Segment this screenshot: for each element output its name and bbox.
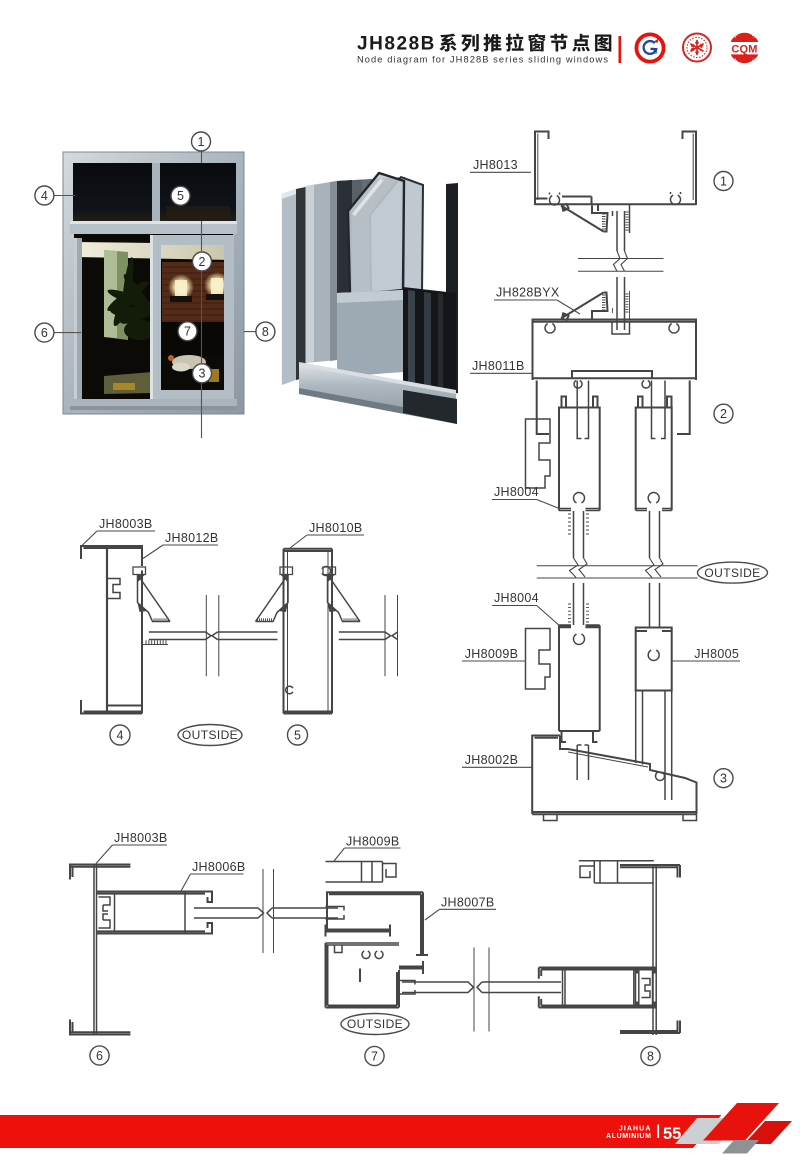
svg-text:JH8012B: JH8012B <box>165 531 219 545</box>
svg-text:1: 1 <box>198 135 205 149</box>
svg-text:3: 3 <box>199 367 206 381</box>
svg-text:ALUMINIUM: ALUMINIUM <box>606 1133 651 1140</box>
svg-text:6: 6 <box>96 1049 103 1063</box>
svg-text:JIAHUA: JIAHUA <box>619 1125 652 1132</box>
svg-text:JH8011B: JH8011B <box>472 359 525 373</box>
svg-text:4: 4 <box>41 189 48 203</box>
svg-text:6: 6 <box>41 326 48 340</box>
svg-text:JH8002B: JH8002B <box>465 753 519 767</box>
svg-text:5: 5 <box>177 189 184 203</box>
svg-text:2: 2 <box>199 255 206 269</box>
svg-text:5: 5 <box>294 728 301 742</box>
svg-text:JH8007B: JH8007B <box>441 896 495 910</box>
svg-text:JH8006B: JH8006B <box>192 860 246 874</box>
svg-text:7: 7 <box>184 325 191 339</box>
svg-text:OUTSIDE: OUTSIDE <box>704 566 760 580</box>
svg-text:JH828BYX: JH828BYX <box>496 286 560 300</box>
svg-text:JH8009B: JH8009B <box>346 835 400 849</box>
svg-text:JH8009B: JH8009B <box>465 647 519 661</box>
svg-text:CQM: CQM <box>731 43 757 55</box>
svg-text:OUTSIDE: OUTSIDE <box>182 728 238 742</box>
svg-text:JH8005: JH8005 <box>694 647 739 661</box>
svg-text:OUTSIDE: OUTSIDE <box>347 1017 403 1031</box>
svg-text:1: 1 <box>720 174 727 188</box>
svg-text:8: 8 <box>647 1049 654 1063</box>
svg-text:JH8003B: JH8003B <box>99 517 153 531</box>
svg-text:3: 3 <box>720 772 727 786</box>
svg-text:JH828B: JH828B <box>357 34 437 55</box>
svg-text:2: 2 <box>720 407 727 421</box>
svg-text:B: B <box>654 50 658 56</box>
svg-text:7: 7 <box>371 1049 378 1063</box>
svg-text:8: 8 <box>262 325 269 339</box>
svg-text:4: 4 <box>117 728 124 742</box>
svg-text:JH8003B: JH8003B <box>114 831 168 845</box>
svg-text:JH8013: JH8013 <box>473 158 518 172</box>
svg-text:55: 55 <box>663 1125 681 1143</box>
svg-text:JH8004: JH8004 <box>494 591 539 605</box>
svg-text:JH8010B: JH8010B <box>309 521 363 535</box>
svg-text:JH8004: JH8004 <box>494 485 539 499</box>
svg-text:Node diagram for JH828B series: Node diagram for JH828B series sliding w… <box>357 54 608 64</box>
